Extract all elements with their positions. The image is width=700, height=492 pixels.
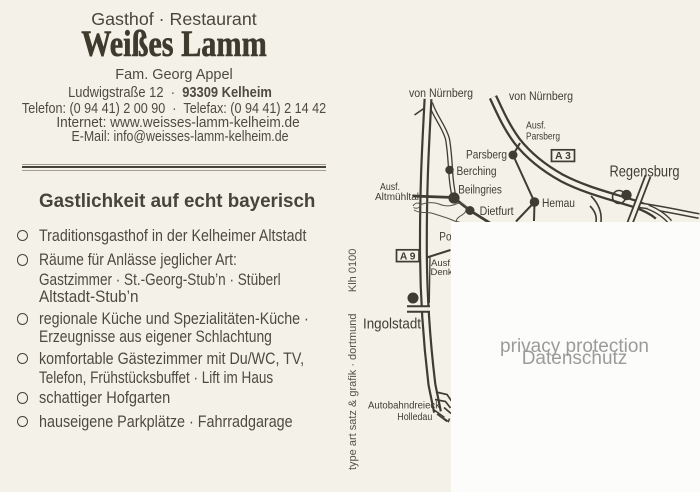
svg-text:von Nürnberg: von Nürnberg	[409, 86, 473, 100]
svg-text:Altmühltal: Altmühltal	[375, 192, 419, 203]
svg-text:Regensburg: Regensburg	[610, 163, 680, 180]
svg-text:A 9: A 9	[400, 251, 416, 262]
svg-text:Dietfurt: Dietfurt	[480, 204, 515, 218]
svg-text:Ausf.: Ausf.	[526, 121, 546, 132]
svg-text:Hemau: Hemau	[542, 196, 575, 210]
svg-text:A 3: A 3	[555, 151, 571, 162]
svg-text:Parsberg: Parsberg	[526, 132, 560, 143]
svg-text:Berching: Berching	[457, 164, 497, 178]
svg-text:Parsberg: Parsberg	[466, 148, 507, 162]
svg-text:von Nürnberg: von Nürnberg	[509, 89, 573, 103]
svg-text:Beilngries: Beilngries	[458, 183, 502, 197]
svg-text:Ingolstadt: Ingolstadt	[363, 316, 421, 332]
svg-text:Po: Po	[439, 230, 451, 244]
svg-text:Holledau: Holledau	[397, 412, 432, 423]
svg-text:Autobahndreieck: Autobahndreieck	[368, 401, 441, 412]
